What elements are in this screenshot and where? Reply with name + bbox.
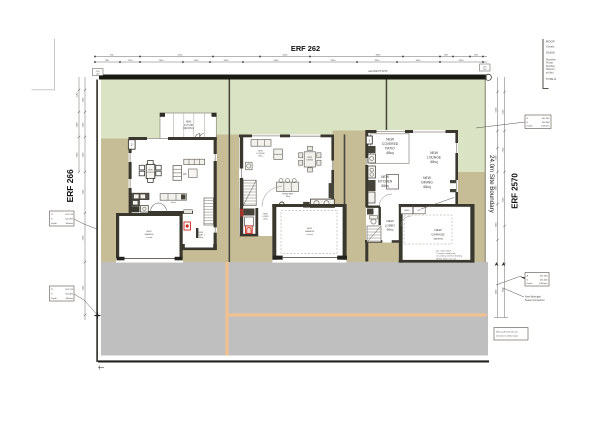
svg-text:3100: 3100	[178, 54, 184, 56]
svg-text:Gar cl barn fitted: Gar cl barn fitted	[436, 250, 451, 253]
svg-text:DINING: DINING	[421, 181, 433, 185]
svg-text:3800: 3800	[376, 54, 382, 56]
svg-text:Site south west fire pit: Site south west fire pit	[496, 331, 518, 334]
svg-text:5600: 5600	[274, 60, 280, 62]
svg-text:Sewer Connection: Sewer Connection	[525, 299, 545, 302]
svg-text:LOUNGE: LOUNGE	[427, 156, 442, 160]
svg-text:160.946: 160.946	[542, 122, 551, 124]
svg-text:lift floor 6500 r rist cast: lift floor 6500 r rist cast	[436, 257, 457, 260]
svg-text:68sq: 68sq	[258, 156, 262, 158]
svg-text:2: 2	[131, 143, 133, 147]
svg-text:ERF 2570: ERF 2570	[510, 173, 519, 209]
svg-text:KITCHEN: KITCHEN	[378, 180, 393, 184]
svg-text:3900: 3900	[331, 60, 337, 62]
svg-text:NEW: NEW	[386, 138, 395, 142]
svg-text:1900: 1900	[159, 60, 165, 62]
svg-text:68sq: 68sq	[381, 184, 388, 188]
svg-text:NEW: NEW	[186, 122, 192, 124]
svg-text:Depth: Depth	[527, 125, 534, 128]
svg-text:DECKING: DECKING	[183, 128, 194, 130]
svg-text:SEq(MI): SEq(MI)	[546, 51, 555, 54]
svg-text:3600: 3600	[416, 60, 422, 62]
svg-text:screed: screed	[433, 237, 443, 241]
svg-text:island: island	[171, 202, 176, 204]
svg-text:NEW: NEW	[430, 151, 439, 155]
svg-text:3300: 3300	[375, 60, 381, 62]
svg-text:Roofshee: Roofshee	[546, 59, 557, 61]
svg-text:WASH: WASH	[404, 209, 410, 212]
svg-text:TOTAL R: TOTAL R	[546, 78, 556, 81]
svg-text:800mm: 800mm	[66, 298, 73, 300]
svg-text:163.714: 163.714	[65, 289, 74, 291]
svg-text:68sq: 68sq	[430, 160, 437, 164]
svg-text:1470mm: 1470mm	[541, 126, 550, 128]
svg-text:162.046: 162.046	[540, 279, 549, 281]
svg-text:wall 220x75 W HF: wall 220x75 W HF	[368, 70, 388, 73]
svg-text:162.280: 162.280	[540, 276, 549, 278]
svg-text:DINING: DINING	[147, 172, 154, 174]
svg-text:24.0m Site Boundary: 24.0m Site Boundary	[488, 155, 495, 214]
svg-text:PATIO: PATIO	[385, 147, 395, 151]
svg-text:163.481: 163.481	[65, 294, 74, 296]
svg-text:4000: 4000	[283, 54, 289, 56]
svg-text:Climatic: Climatic	[546, 46, 555, 49]
svg-text:Depth: Depth	[527, 282, 534, 285]
svg-text:68sq: 68sq	[423, 185, 430, 189]
svg-text:1700: 1700	[128, 60, 134, 62]
svg-text:2600: 2600	[194, 60, 200, 62]
svg-text:2800: 2800	[224, 60, 230, 62]
svg-text:NEW: NEW	[381, 175, 390, 179]
svg-text:Depth: Depth	[51, 222, 58, 225]
svg-text:COVERED: COVERED	[382, 142, 399, 146]
svg-text:Roofingt: Roofingt	[546, 65, 555, 68]
svg-text:Depth: Depth	[51, 297, 58, 300]
svg-text:3500: 3500	[459, 60, 465, 62]
svg-text:OUT AIR: OUT AIR	[184, 124, 193, 127]
svg-text:NEW: NEW	[423, 176, 432, 180]
svg-text:68sq: 68sq	[263, 219, 267, 221]
svg-text:GARAGE: GARAGE	[144, 233, 154, 236]
svg-text:screed: screed	[146, 236, 153, 239]
svg-text:163.287: 163.287	[65, 219, 74, 221]
svg-text:SSlover t: SSlover t	[546, 68, 556, 71]
svg-text:1400mm: 1400mm	[539, 283, 548, 285]
svg-text:161.285: 161.285	[542, 118, 551, 120]
svg-text:ERF 266: ERF 266	[65, 169, 75, 202]
svg-text:68sq: 68sq	[286, 196, 290, 198]
svg-text:ERF 262: ERF 262	[291, 44, 320, 53]
svg-text:500mm: 500mm	[66, 223, 73, 225]
svg-text:screed: screed	[306, 233, 313, 236]
svg-text:secured by steel threshelding: secured by steel threshelding	[436, 255, 462, 258]
svg-text:ROOF: ROOF	[546, 40, 555, 44]
svg-text:All pan: All pan	[546, 62, 554, 65]
svg-text:68sq: 68sq	[199, 237, 203, 239]
svg-text:GARAGE: GARAGE	[305, 230, 315, 233]
svg-text:68sq: 68sq	[387, 228, 394, 232]
svg-text:att filed: att filed	[546, 72, 554, 75]
svg-text:163.714: 163.714	[65, 214, 74, 216]
svg-text:erection in white roads: erection in white roads	[496, 335, 519, 338]
svg-text:68sq: 68sq	[386, 151, 393, 155]
svg-text:DINING: DINING	[306, 160, 313, 162]
